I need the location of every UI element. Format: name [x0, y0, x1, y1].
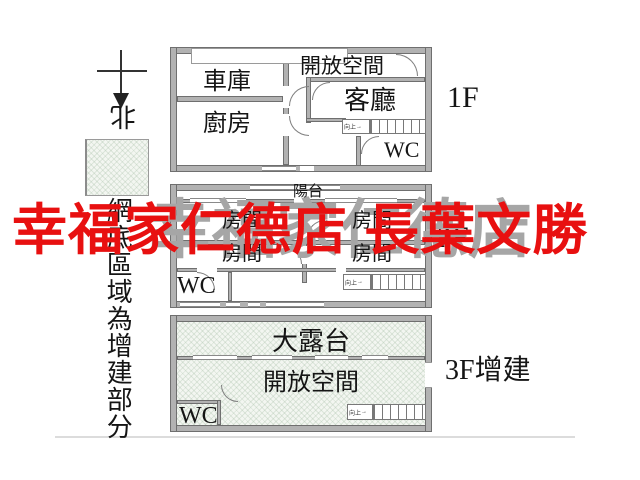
- f1-entry-door-arc: [396, 54, 418, 76]
- f1-wc-label: WC: [384, 138, 419, 161]
- north-label-glyph: 北: [110, 102, 136, 129]
- f3-openspace-label: 開放空間: [263, 371, 359, 396]
- f3-stairs-landing: 向上→: [347, 404, 373, 420]
- f2-stairs-arrow-icon: →: [357, 279, 363, 285]
- north-arrow-cross: [97, 70, 147, 72]
- f1-stairs-treads: [370, 119, 426, 134]
- f3-wc-label: WC: [179, 404, 218, 429]
- f1-kitchen-label: 廚房: [203, 112, 251, 137]
- f2-window-bottom-3: [248, 302, 260, 307]
- f1-wall-stairs-left: [306, 118, 346, 122]
- f1-livingroom-door-arc: [312, 82, 330, 100]
- f1-wall-garage-kitchen: [177, 96, 283, 102]
- floor-plan-page: 北 網底區域為增建部分 向上→ 車庫 廚房 開放空間 客廳 WC 1F 陽台: [0, 0, 640, 480]
- f1-stairs-up-label: 向上: [344, 122, 356, 131]
- f2-stairs-up-label: 向上: [345, 278, 357, 287]
- f1-wall-divider-vertical: [283, 54, 289, 165]
- f3-terrace-label: 大露台: [272, 328, 350, 355]
- f2-window-bottom-4: [266, 302, 324, 307]
- scan-artifact-line: [55, 436, 575, 438]
- f2-stairs-treads: [371, 274, 426, 290]
- legend-hatch-swatch: [85, 139, 149, 196]
- f3-stairs-arrow-icon: →: [361, 409, 367, 415]
- f1-wc-door-arc: [361, 136, 379, 154]
- north-label: 北: [110, 102, 136, 129]
- f3-stairs-up-label: 向上: [349, 408, 361, 417]
- f1-window-bottom: [262, 166, 296, 171]
- f3-right-wall-opening: [425, 362, 432, 388]
- f1-stairs-arrow-icon: →: [356, 124, 362, 130]
- f3-terrace-window-4: [362, 355, 388, 360]
- f3-floor-label: 3F增建: [445, 356, 531, 385]
- f3-stairs-treads: [373, 404, 426, 420]
- f1-openspace-label: 開放空間: [300, 55, 384, 77]
- f2-wc-label: WC: [177, 274, 216, 299]
- f3-wall-left: [170, 315, 177, 432]
- f2-wc-wall: [228, 272, 232, 301]
- f1-kitchen-door-arc: [289, 116, 309, 136]
- red-watermark: 幸福家仁德店 長葉文勝: [12, 203, 588, 258]
- f1-bottom-door-gap: [300, 166, 314, 171]
- f2-stairs-landing: 向上→: [343, 274, 371, 290]
- f1-garage-door-arc: [289, 86, 309, 106]
- f1-floor-label: 1F: [447, 82, 479, 114]
- f1-garage-label: 車庫: [203, 70, 251, 95]
- f1-wall-left: [170, 47, 177, 172]
- f3-wall-top: [170, 315, 432, 322]
- f2-stairs-gap: [336, 268, 346, 272]
- f1-wall-right: [425, 47, 432, 172]
- f2-window-bottom-2: [226, 302, 240, 307]
- f1-livingroom-label: 客廳: [344, 87, 396, 114]
- f3-terrace-window-1: [193, 355, 237, 360]
- f1-stairs-landing: 向上→: [342, 119, 370, 134]
- f2-window-bottom-1: [180, 302, 220, 307]
